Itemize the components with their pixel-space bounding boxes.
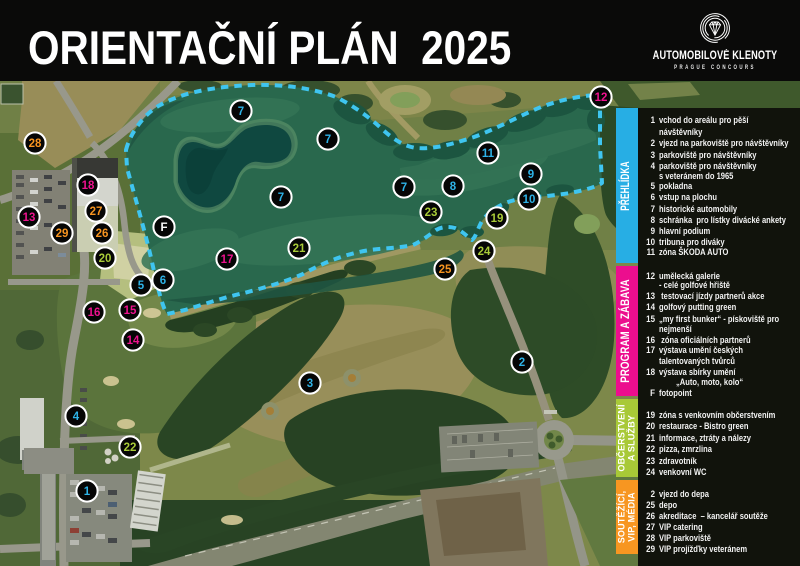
svg-text:10: 10 (523, 194, 536, 206)
svg-text:7: 7 (325, 134, 331, 146)
svg-text:14: 14 (127, 335, 140, 347)
svg-text:16: 16 (88, 307, 101, 319)
svg-text:13: 13 (23, 212, 36, 224)
svg-text:15: 15 (124, 305, 137, 317)
svg-text:9: 9 (528, 169, 534, 181)
svg-text:19: 19 (491, 213, 504, 225)
svg-text:7: 7 (401, 182, 407, 194)
svg-text:4: 4 (73, 411, 80, 423)
svg-text:11: 11 (482, 148, 495, 160)
svg-text:23: 23 (425, 207, 438, 219)
svg-text:2: 2 (519, 357, 525, 369)
svg-text:18: 18 (82, 180, 95, 192)
svg-text:29: 29 (56, 228, 69, 240)
svg-text:26: 26 (96, 228, 109, 240)
svg-text:7: 7 (278, 192, 284, 204)
svg-text:21: 21 (293, 243, 306, 255)
svg-text:1: 1 (84, 486, 91, 498)
svg-text:17: 17 (221, 254, 234, 266)
svg-text:24: 24 (478, 246, 491, 258)
svg-text:3: 3 (307, 378, 313, 390)
svg-text:12: 12 (595, 92, 608, 104)
svg-text:F: F (160, 222, 167, 234)
svg-text:27: 27 (90, 206, 103, 218)
svg-text:20: 20 (99, 253, 112, 265)
svg-text:8: 8 (450, 181, 457, 193)
svg-text:5: 5 (138, 280, 145, 292)
svg-text:25: 25 (439, 264, 452, 276)
svg-text:6: 6 (160, 275, 166, 287)
svg-text:22: 22 (124, 442, 137, 454)
svg-text:7: 7 (238, 106, 244, 118)
svg-text:28: 28 (29, 138, 42, 150)
